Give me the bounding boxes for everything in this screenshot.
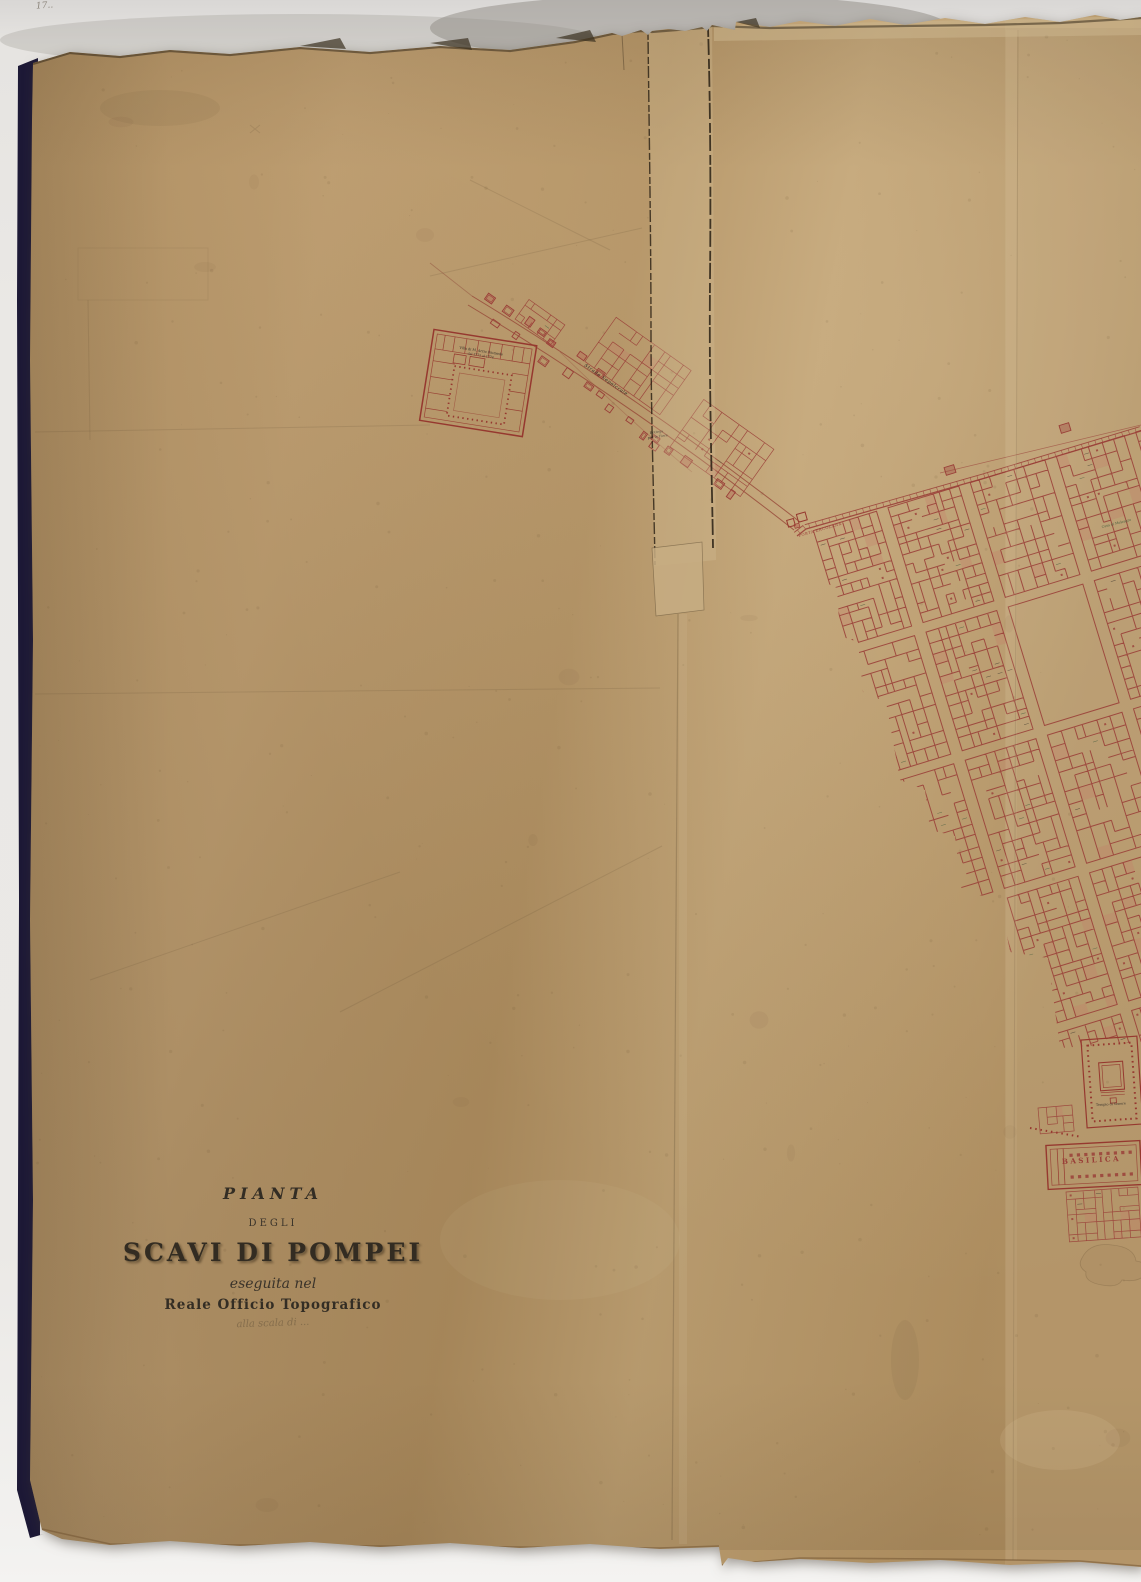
title-degli: DEGLI	[118, 1218, 428, 1229]
age-blotch	[416, 228, 434, 242]
title-main: SCAVI DI POMPEI	[118, 1238, 428, 1267]
title-office: Reale Officio Topografico	[118, 1297, 428, 1313]
tone-bottom	[30, 1380, 1141, 1550]
age-blotch	[194, 262, 216, 272]
age-blotch	[249, 175, 259, 190]
age-blotch	[750, 1011, 769, 1028]
title-eseguita: eseguita nel	[118, 1276, 428, 1292]
map-scan-art: Villa di M. Arrio Diomede dal 1771 al 17…	[0, 0, 1141, 1582]
title-pianta: PIANTA	[118, 1184, 428, 1203]
age-blotch	[740, 615, 757, 621]
sheet-surface: Villa di M. Arrio Diomede dal 1771 al 17…	[0, 0, 1141, 1582]
age-blotch	[528, 834, 537, 846]
age-blotch	[559, 669, 580, 685]
title-block: PIANTA DEGLI SCAVI DI POMPEI eseguita ne…	[118, 1184, 428, 1329]
corner-pencil-note: 17..	[36, 0, 54, 11]
age-blotch	[453, 1097, 470, 1107]
age-blotch	[787, 1145, 795, 1162]
age-blotch	[256, 1498, 279, 1512]
tone-right	[1005, 20, 1141, 1570]
tone-dark	[0, 0, 1141, 1582]
scanned-map-page: Villa di M. Arrio Diomede dal 1771 al 17…	[0, 0, 1141, 1582]
